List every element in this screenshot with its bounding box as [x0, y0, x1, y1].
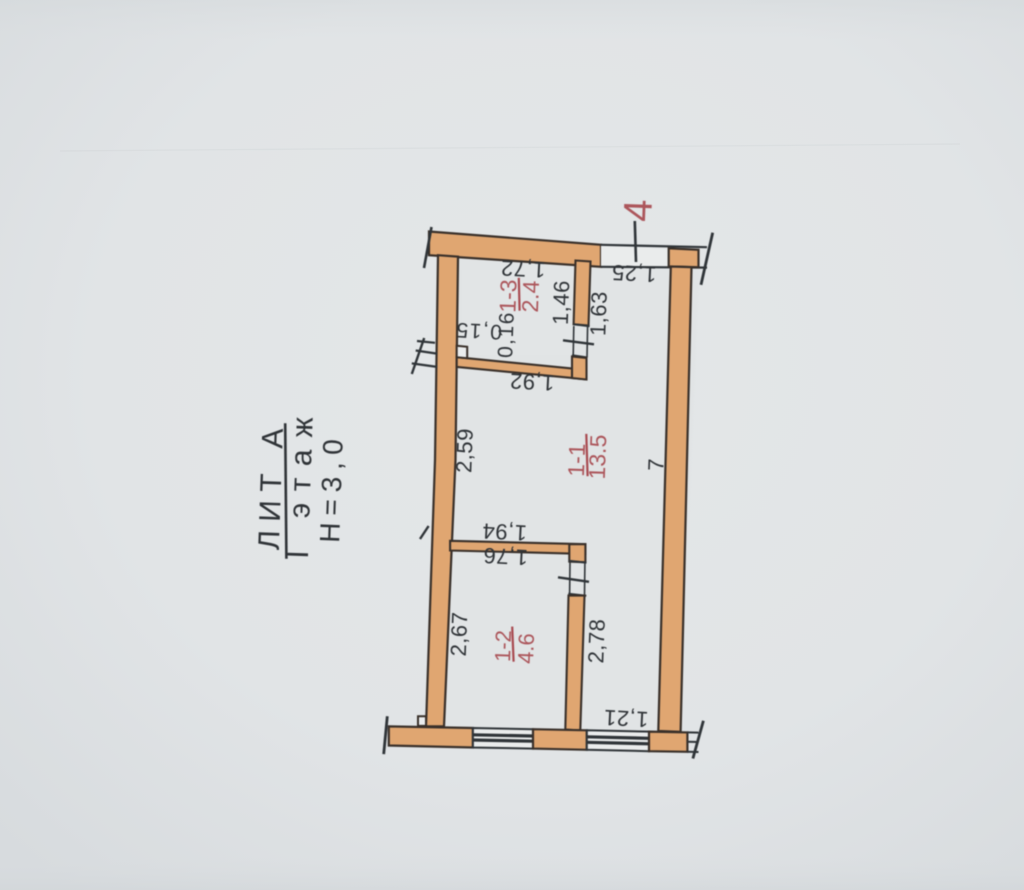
svg-text:2,59: 2,59	[451, 428, 478, 474]
svg-text:1,72: 1,72	[500, 255, 546, 282]
svg-text:13.5: 13.5	[584, 434, 612, 480]
svg-text:1,25: 1,25	[611, 260, 657, 287]
svg-text:1,76: 1,76	[482, 543, 528, 570]
svg-text:7: 7	[643, 458, 668, 472]
svg-text:1,46: 1,46	[548, 280, 575, 326]
svg-text:4: 4	[616, 199, 661, 223]
svg-text:1,21: 1,21	[603, 705, 649, 732]
svg-text:1,63: 1,63	[585, 291, 612, 337]
svg-text:2.4: 2.4	[517, 280, 544, 313]
svg-text:Н=3,0: Н=3,0	[314, 432, 349, 544]
svg-text:0,15: 0,15	[454, 318, 502, 343]
svg-text:1,94: 1,94	[481, 518, 527, 545]
svg-text:1,92: 1,92	[509, 368, 555, 395]
svg-text:4.6: 4.6	[513, 633, 539, 664]
svg-text:2,67: 2,67	[446, 611, 473, 657]
svg-text:2,78: 2,78	[583, 618, 610, 664]
